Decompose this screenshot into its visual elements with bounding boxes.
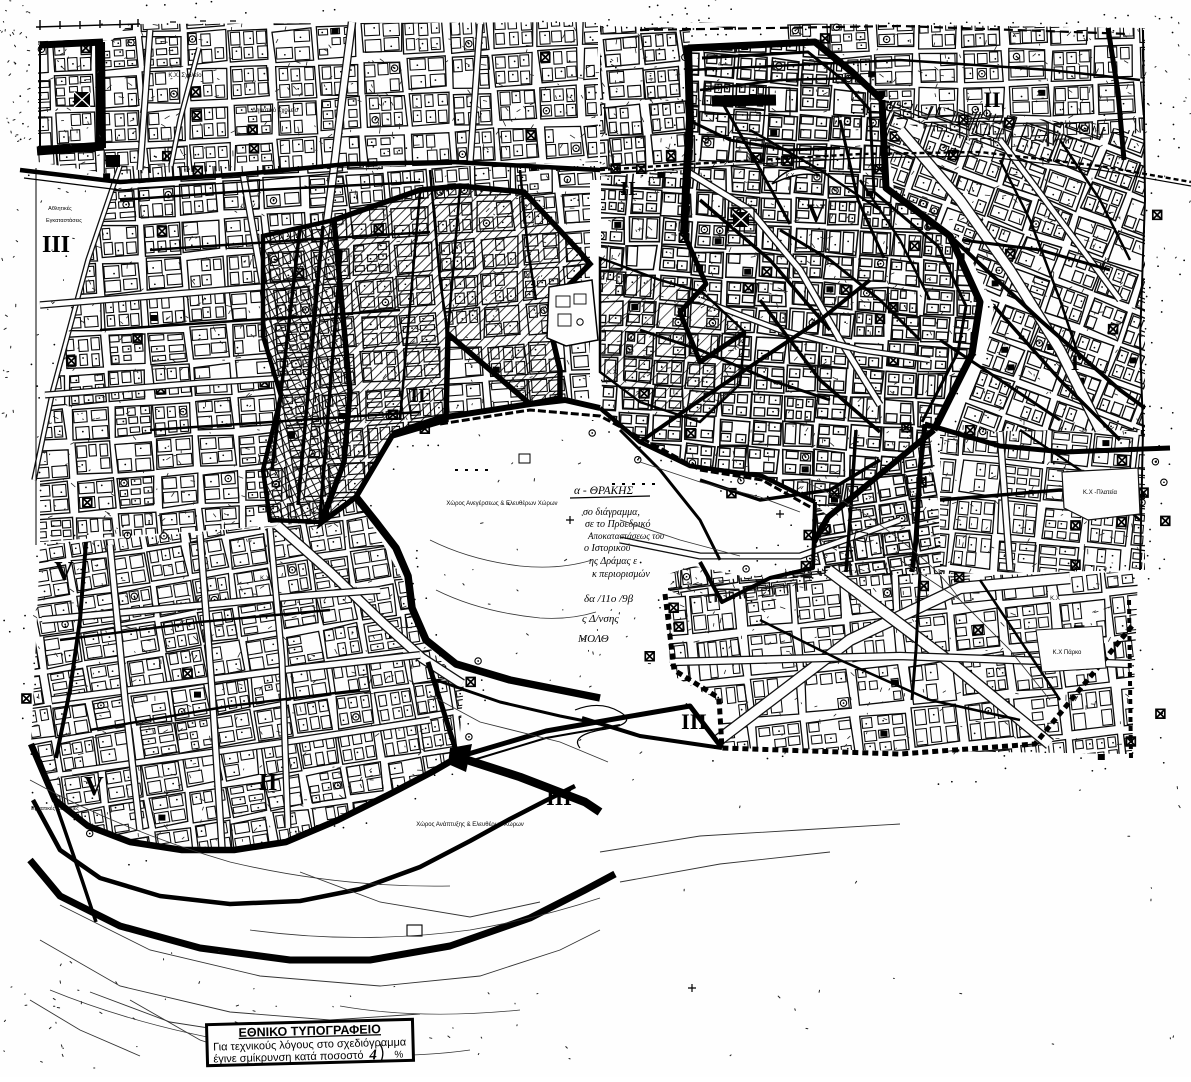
- svg-text:III: III: [681, 709, 707, 734]
- svg-text:III: III: [546, 785, 572, 810]
- svg-text:δα /11ο /9β: δα /11ο /9β: [584, 593, 634, 605]
- svg-text:4: 4: [368, 1047, 377, 1063]
- svg-text:Κ.Χ Πάρκο: Κ.Χ Πάρκο: [1053, 649, 1082, 656]
- svg-text:Κ.Χ: Κ.Χ: [1050, 596, 1060, 602]
- svg-text:II: II: [410, 385, 426, 407]
- svg-text:V: V: [807, 199, 826, 228]
- svg-text:Κ.Χ -Πλατεία: Κ.Χ -Πλατεία: [1083, 490, 1117, 496]
- svg-text:ο Ιστορικού: ο Ιστορικού: [584, 543, 631, 554]
- svg-text:ης Δράμας ε: ης Δράμας ε: [589, 556, 637, 567]
- svg-text:α - ΘΡΑΚΗΣ: α - ΘΡΑΚΗΣ: [574, 485, 633, 497]
- svg-text:Κ.Χ: Κ.Χ: [786, 173, 795, 179]
- svg-text:II: II: [620, 178, 636, 200]
- svg-text:I: I: [1071, 350, 1080, 375]
- svg-text:Αθλητικές: Αθλητικές: [48, 205, 72, 212]
- svg-text:V: V: [84, 771, 104, 801]
- svg-text:II: II: [676, 305, 688, 321]
- svg-text:ς Δ/νσης: ς Δ/νσης: [582, 613, 619, 625]
- svg-text:%: %: [394, 1050, 403, 1061]
- svg-text:V: V: [54, 556, 74, 586]
- svg-text:Εγκαταστάσεις: Εγκαταστάσεις: [46, 217, 82, 224]
- svg-text:σο διάγραμμα,: σο διάγραμμα,: [583, 507, 640, 518]
- svg-text:κ περιορισμών: κ περιορισμών: [592, 569, 650, 580]
- svg-text:Αποκαταστάσεως του: Αποκαταστάσεως του: [587, 531, 664, 541]
- svg-text:Χώρος Ανάπτυξης & Ελευθέρων Χώ: Χώρος Ανάπτυξης & Ελευθέρων Χώρων: [416, 821, 524, 828]
- svg-text:Κ.Χ: Κ.Χ: [754, 97, 766, 104]
- svg-text:II: II: [983, 87, 1000, 112]
- svg-text:Χώρος Ανεγέρσεως & Ελευθέρων Χ: Χώρος Ανεγέρσεως & Ελευθέρων Χώρων: [446, 500, 557, 507]
- svg-text:σε το Προεδρικό: σε το Προεδρικό: [585, 519, 650, 530]
- svg-text:K.X: K.X: [607, 370, 617, 376]
- svg-text:Κ.Χ. Σχολείο: Κ.Χ. Σχολείο: [168, 73, 202, 79]
- svg-text:II: II: [259, 770, 278, 796]
- svg-text:Εργατικές Κατοικίες: Εργατικές Κατοικίες: [31, 805, 79, 812]
- svg-text:III: III: [42, 232, 70, 258]
- svg-text:Κ.Χ: Κ.Χ: [260, 576, 270, 582]
- svg-text:Δημοτικό Σχολείο: Δημοτικό Σχολείο: [252, 107, 299, 114]
- svg-text:ΜΟΛΘ: ΜΟΛΘ: [577, 633, 609, 645]
